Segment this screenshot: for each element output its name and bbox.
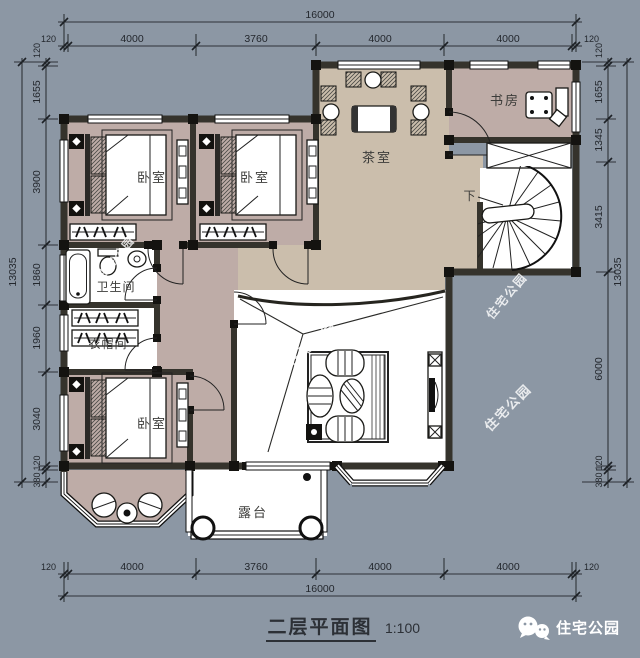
bathtub [66, 250, 90, 304]
dim-left: 13035 120 1655 3900 1860 1960 3040 120 3… [7, 43, 58, 488]
stairs-down-label: 下 [463, 189, 476, 203]
dim-left-seg: 120 [32, 43, 42, 58]
dim-top-total: 16000 [305, 9, 334, 21]
window-bedroom1-left [60, 140, 68, 202]
storage-closet [487, 143, 571, 168]
dim-bottom-seg: 4000 [496, 561, 520, 573]
dim-left-seg: 1860 [31, 263, 43, 287]
terrace-label: 露台 [238, 505, 268, 520]
window-study-top-1 [470, 61, 508, 69]
dim-top-seg: 4000 [496, 33, 520, 45]
wechat-icon [519, 617, 551, 641]
window-tea-top [338, 61, 420, 69]
dim-left-seg: 1655 [31, 80, 43, 104]
bathroom-label: 卫生间 [96, 280, 135, 294]
window-bedroom2-top [215, 115, 289, 123]
sink [128, 251, 146, 267]
dim-bottom-seg: 4000 [120, 561, 144, 573]
dim-top-seg: 120 [584, 34, 599, 44]
tv-cabinet [428, 352, 442, 438]
dim-top-seg: 4000 [368, 33, 392, 45]
page-title: 二层平面图 [267, 616, 372, 638]
study-table [526, 92, 552, 118]
window-study-top-2 [538, 61, 570, 69]
dim-left-total: 13035 [7, 257, 19, 286]
dim-top-seg: 3760 [244, 33, 268, 45]
dim-bottom-seg: 120 [584, 562, 599, 572]
bedroom2-label: 卧室 [240, 170, 270, 185]
dim-bottom-seg: 4000 [368, 561, 392, 573]
window-study-right [572, 82, 580, 132]
tea-table [352, 106, 396, 132]
watermark-background: 住宅公园 [482, 381, 535, 434]
window-bedroom3-left [60, 395, 68, 451]
dim-right-seg: 380 [594, 472, 604, 487]
dim-left-seg: 120 [32, 455, 42, 470]
dim-right-seg: 1345 [593, 128, 605, 152]
terrace-column-left [192, 517, 214, 539]
bedroom1-label: 卧室 [137, 170, 167, 185]
dim-left-seg: 380 [32, 472, 42, 487]
dim-bottom-seg: 3760 [244, 561, 268, 573]
dim-top-seg: 120 [41, 34, 56, 44]
dim-top-seg: 4000 [120, 33, 144, 45]
floor-plan-drawing: 卧室 卧室 茶室 书房 卫生间 衣帽间 卧室 露台 下 住宅公园 住宅公园 住宅… [0, 0, 640, 658]
title-block: 二层平面图 1:100 [266, 616, 420, 641]
dim-bottom-seg: 120 [41, 562, 56, 572]
dim-bottom: 120 4000 3760 4000 4000 120 16000 [41, 558, 599, 602]
study-label: 书房 [490, 93, 520, 108]
dim-right-seg: 3415 [593, 205, 605, 229]
wardrobe-bedroom2 [200, 224, 266, 240]
terrace-column-right [300, 517, 322, 539]
dim-right-total: 13035 [612, 257, 624, 286]
column-dot [303, 473, 311, 481]
window-cloakroom-left [60, 315, 68, 351]
dim-top: 16000 120 4000 3760 4000 4000 120 [41, 9, 599, 56]
dim-right: 120 1655 1345 3415 6000 120 380 13035 [582, 43, 634, 488]
dim-left-seg: 3900 [31, 170, 43, 194]
cloakroom-label: 衣帽间 [88, 336, 127, 351]
dim-right-seg: 1655 [593, 80, 605, 104]
brand-name: 住宅公园 [556, 619, 620, 637]
terrace-door [246, 462, 330, 470]
dim-right-seg: 120 [594, 455, 604, 470]
brand-logo: 住宅公园 [519, 617, 621, 641]
dim-right-seg: 6000 [593, 357, 605, 381]
cloakroom-rack-1 [72, 310, 138, 326]
title-scale: 1:100 [385, 620, 420, 636]
watermark-stairs: 住宅公园 [483, 269, 530, 322]
dim-left-seg: 3040 [31, 407, 43, 431]
floor-plan-page: 卧室 卧室 茶室 书房 卫生间 衣帽间 卧室 露台 下 住宅公园 住宅公园 住宅… [0, 0, 640, 658]
tea-room-label: 茶室 [362, 150, 392, 165]
dim-right-seg: 120 [594, 43, 604, 58]
dim-left-seg: 1960 [31, 326, 43, 350]
dim-bottom-total: 16000 [305, 583, 334, 595]
window-bedroom1-top [88, 115, 162, 123]
